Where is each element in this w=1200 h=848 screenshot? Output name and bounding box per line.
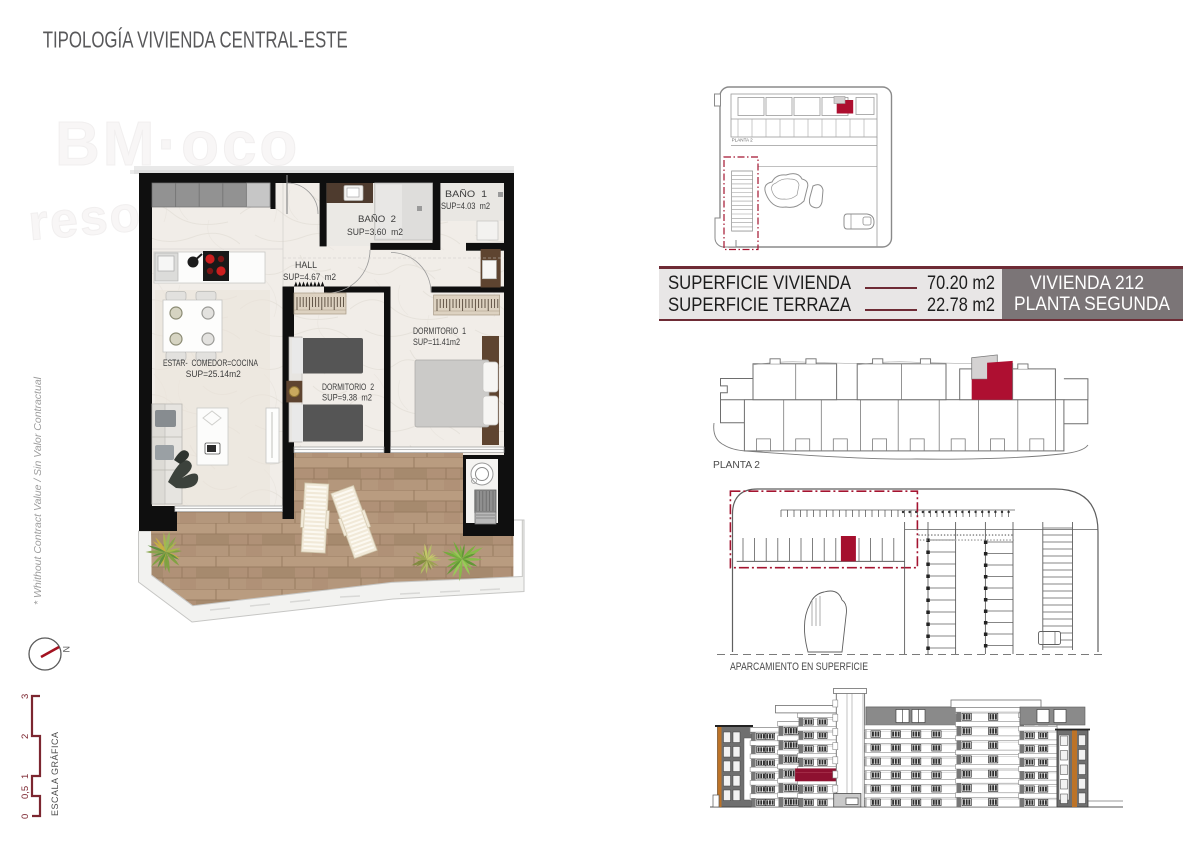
svg-text:ESTAR- COMEDOR=COCINA: ESTAR- COMEDOR=COCINA	[163, 358, 258, 368]
svg-text:DORMITORIO 1: DORMITORIO 1	[413, 326, 466, 336]
svg-text:70.20 m2: 70.20 m2	[927, 273, 995, 294]
svg-text:PLANTA SEGUNDA: PLANTA SEGUNDA	[1014, 294, 1170, 315]
svg-text:BAÑO 1: BAÑO 1	[445, 189, 487, 199]
svg-text:BAÑO 2: BAÑO 2	[358, 214, 396, 224]
svg-text:DORMITORIO 2: DORMITORIO 2	[322, 382, 374, 392]
svg-text:SUP=4.03 m2: SUP=4.03 m2	[441, 201, 490, 211]
svg-text:TIPOLOGÍA VIVIENDA CENTRAL-EST: TIPOLOGÍA VIVIENDA CENTRAL-ESTE	[43, 27, 348, 53]
svg-text:SUP=4.67 m2: SUP=4.67 m2	[283, 272, 336, 282]
svg-text:SUPERFICIE TERRAZA: SUPERFICIE TERRAZA	[668, 295, 851, 316]
svg-text:SUP=25.14m2: SUP=25.14m2	[186, 369, 241, 379]
svg-text:APARCAMIENTO EN SUPERFICIE: APARCAMIENTO EN SUPERFICIE	[730, 661, 868, 673]
svg-text:SUPERFICIE VIVIENDA: SUPERFICIE VIVIENDA	[668, 273, 851, 294]
svg-text:SUP=9.38 m2: SUP=9.38 m2	[322, 393, 372, 403]
svg-text:VIVIENDA 212: VIVIENDA 212	[1030, 273, 1144, 294]
svg-text:* Whithout Contract Value / Si: * Whithout Contract Value / Sin Valor Co…	[32, 376, 44, 605]
svg-text:PLANTA 2: PLANTA 2	[713, 459, 760, 471]
svg-text:HALL: HALL	[295, 260, 317, 270]
svg-text:SUP=11.41m2: SUP=11.41m2	[413, 337, 460, 347]
svg-text:22.78 m2: 22.78 m2	[927, 295, 995, 316]
svg-text:SUP=3.60 m2: SUP=3.60 m2	[347, 227, 403, 237]
